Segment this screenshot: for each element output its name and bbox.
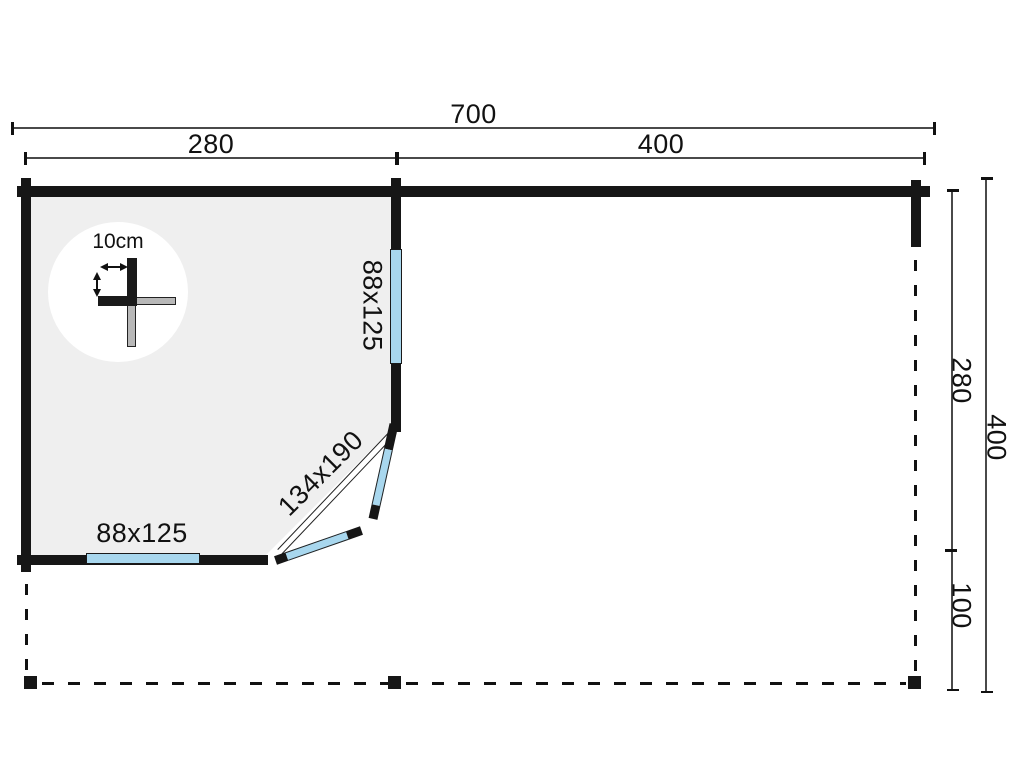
terrace-outline-bottom — [42, 682, 906, 685]
wall-top — [17, 186, 930, 197]
terrace-outline-left — [25, 584, 28, 674]
wall-middle-upper — [391, 178, 401, 250]
window-bottom — [86, 553, 200, 564]
window-bottom-size-label: 88x125 — [92, 520, 192, 547]
dimension-tick — [945, 549, 957, 552]
dimension-label-cabin-depth: 280 — [948, 341, 975, 421]
door-leaf-cap — [369, 504, 381, 520]
wall-left — [21, 178, 31, 572]
detail-log-horizontal — [136, 297, 176, 305]
detail-log-vertical — [127, 305, 136, 347]
dimension-label-overhang-depth: 100 — [948, 566, 975, 646]
window-right-size-label: 88x125 — [359, 251, 386, 361]
door-leaf-cap — [346, 526, 363, 539]
post-top-right — [911, 180, 921, 247]
post-bottom-left — [24, 676, 37, 689]
terrace-outline-right — [914, 260, 917, 672]
dimension-label-cabin-width: 280 — [25, 131, 397, 158]
wall-thickness-label: 10cm — [78, 231, 158, 252]
wall-middle-lower — [391, 363, 401, 432]
floor-plan: 10cm 700 — [0, 0, 1024, 768]
dimension-label-total-depth: 400 — [983, 398, 1010, 478]
door-leaf-glass — [372, 449, 393, 507]
dimension-label-canopy-width: 400 — [397, 131, 925, 158]
post-bottom-middle — [388, 676, 401, 689]
post-bottom-right — [908, 676, 921, 689]
dimension-label-total-width: 700 — [12, 101, 935, 128]
thickness-arrows-icon — [86, 256, 136, 306]
window-right — [390, 249, 402, 364]
